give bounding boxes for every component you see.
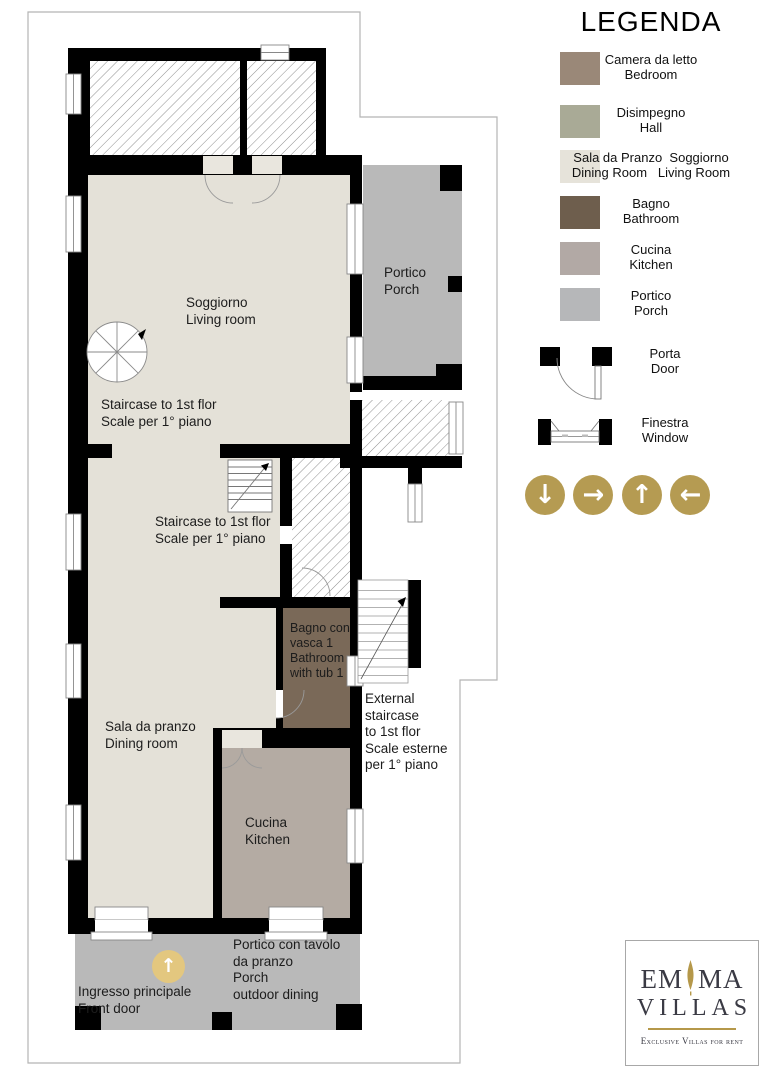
label-porch-top: Portico Porch	[384, 265, 426, 298]
front-door-arrow-icon: ↑	[152, 950, 185, 983]
label-external-staircase: External staircase to 1st flor Scale est…	[365, 691, 448, 774]
legend-item-kitchen: Cucina Kitchen	[540, 242, 762, 282]
label-staircase-mid: Staircase to 1st flor Scale per 1° piano	[155, 514, 271, 547]
label-door-symbol: Porta Door	[610, 347, 720, 376]
legend-item-dining-living: Sala da Pranzo Soggiorno Dining Room Liv…	[540, 150, 762, 190]
external-staircase	[358, 580, 408, 683]
logo-tagline: Exclusive Villas for rent	[641, 1036, 744, 1046]
label-living-room: Soggiorno Living room	[186, 295, 256, 328]
label-front-door: Ingresso principale Front door	[78, 984, 191, 1017]
label-porch-bottom: Portico con tavolo da pranzo Porch outdo…	[233, 937, 340, 1003]
label-kitchen: Cucina Kitchen	[245, 815, 290, 848]
legend-title: LEGENDA	[540, 6, 762, 38]
cypress-tree-icon	[684, 960, 697, 996]
nav-arrow-right-icon[interactable]: →	[573, 475, 613, 515]
legend-item-porch: Portico Porch	[540, 288, 762, 328]
legend-item-bathroom: Bagno Bathroom	[540, 196, 762, 236]
label-window-symbol: Finestra Window	[610, 416, 720, 445]
logo-text-left: EM	[640, 964, 683, 995]
legend-item-bedroom: Camera da letto Bedroom	[540, 52, 762, 92]
spiral-staircase	[87, 322, 147, 382]
logo-divider	[648, 1028, 736, 1030]
window-symbol-icon	[538, 417, 612, 447]
label-dining-room: Sala da pranzo Dining room	[105, 719, 196, 752]
nav-arrow-down-icon[interactable]: ↓	[525, 475, 565, 515]
legend-item-hall: Disimpegno Hall	[540, 105, 762, 145]
floorplan-page: Soggiorno Living room Staircase to 1st f…	[0, 0, 763, 1080]
logo-text-villas: VILLAS	[637, 995, 752, 1022]
staircase-mid	[228, 460, 272, 512]
room-dining-lower	[88, 748, 213, 920]
emma-villas-logo: EM MA VILLAS Exclusive Villas for rent	[625, 940, 759, 1066]
door-symbol-icon	[540, 344, 612, 402]
nav-arrow-left-icon[interactable]: ←	[670, 475, 710, 515]
label-staircase-upper: Staircase to 1st flor Scale per 1° piano	[101, 397, 217, 430]
nav-arrow-up-icon[interactable]: ↑	[622, 475, 662, 515]
nav-arrows: ↓ → ↑ ←	[525, 475, 714, 515]
logo-text-right: MA	[698, 964, 744, 995]
label-bathroom: Bagno con vasca 1 Bathroom with tub 1	[290, 621, 350, 681]
